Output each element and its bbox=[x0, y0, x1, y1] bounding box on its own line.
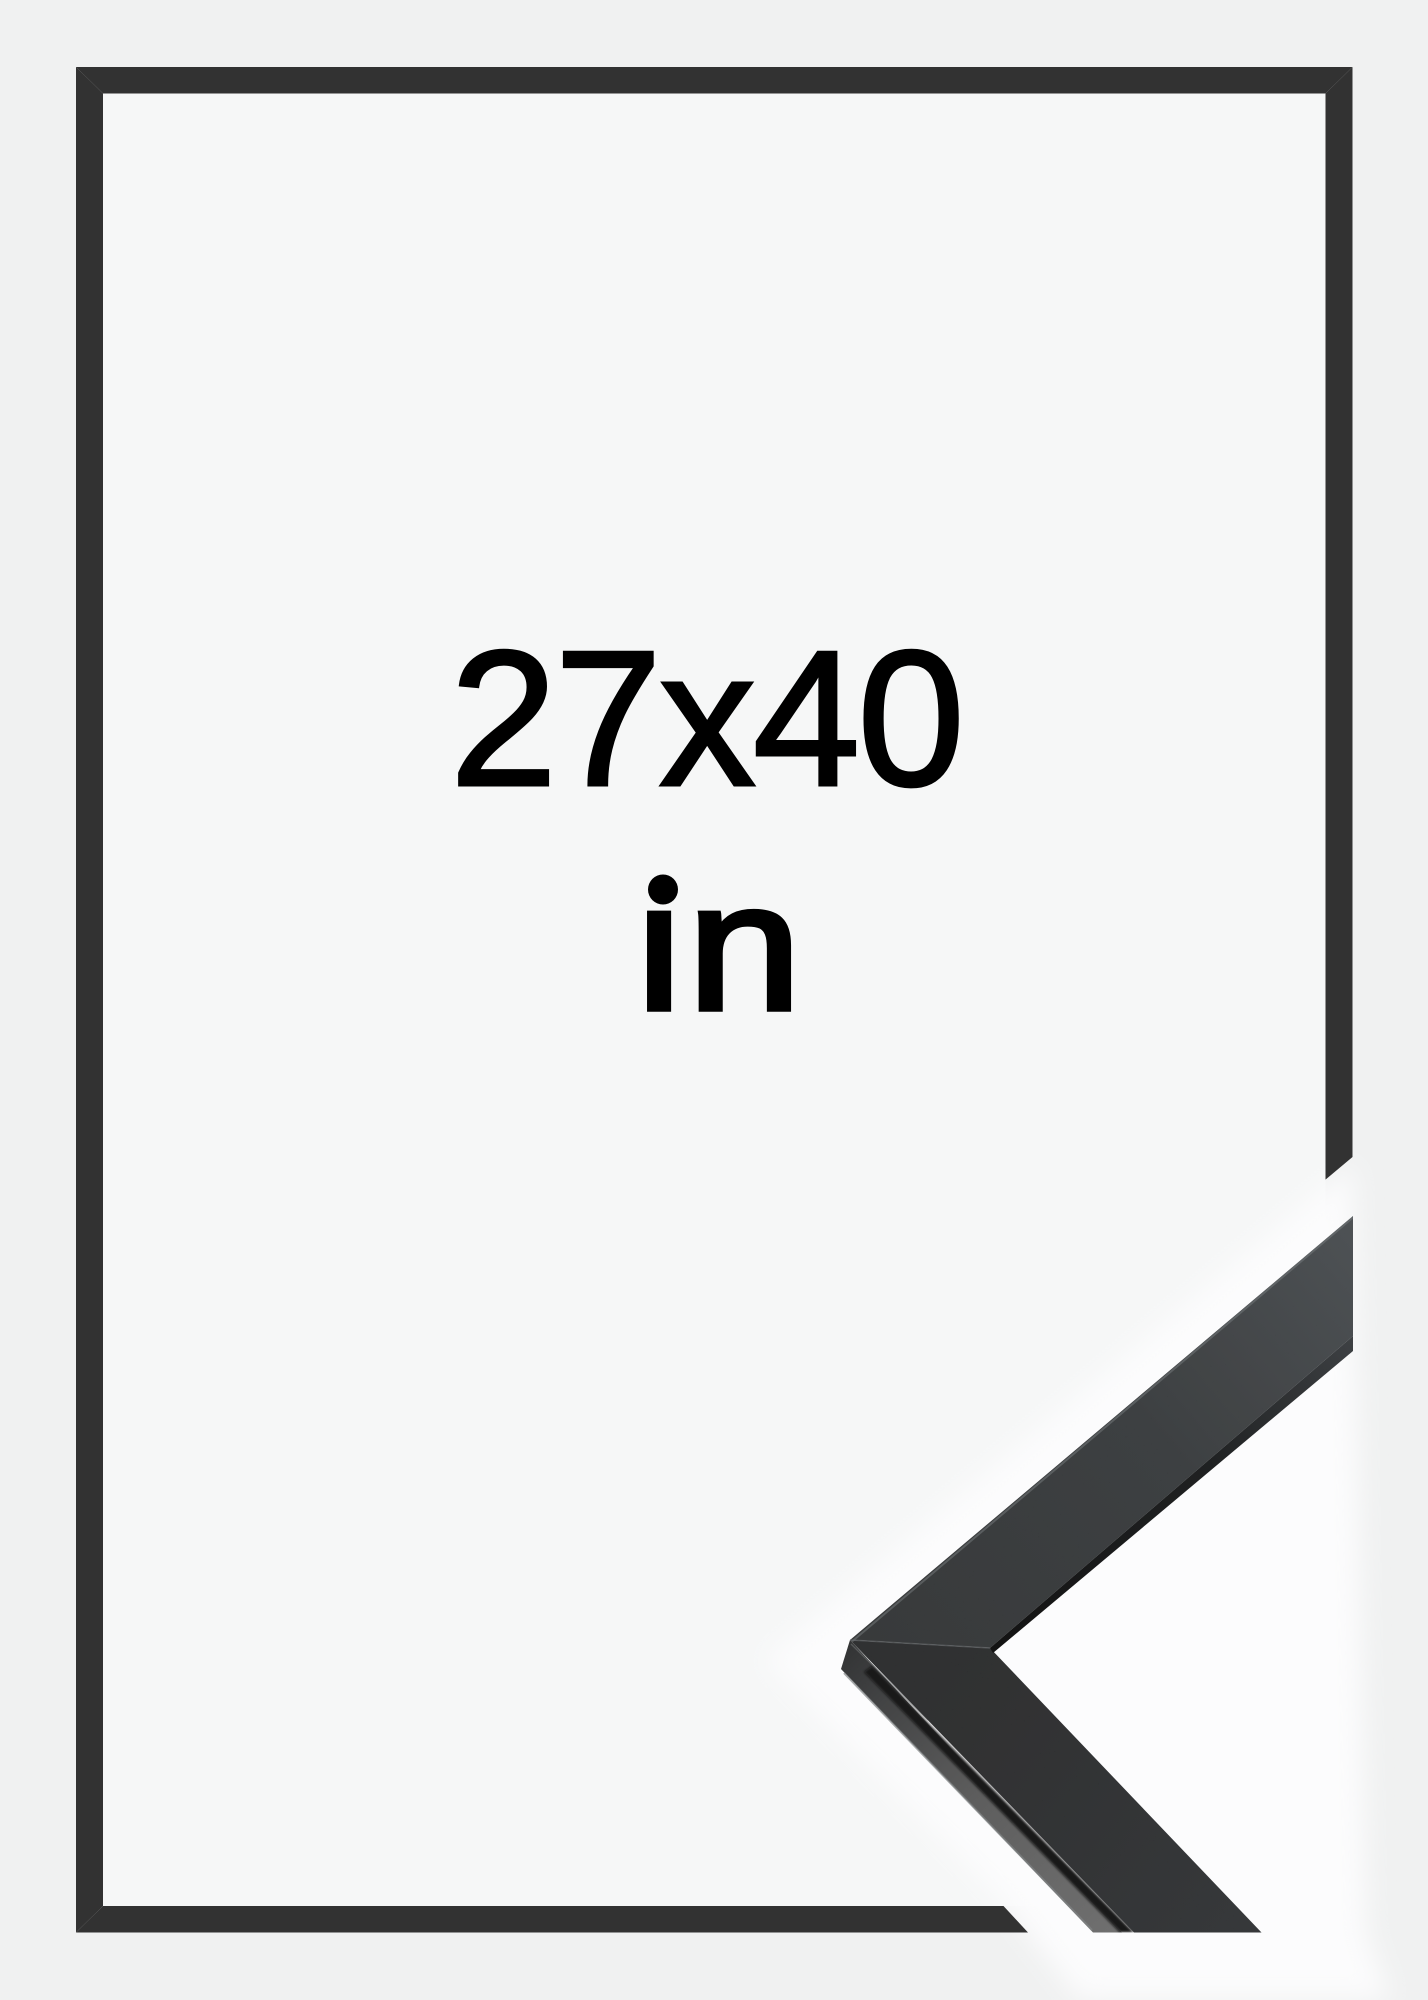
svg-text:27x40: 27x40 bbox=[450, 610, 962, 826]
svg-text:ın: ın bbox=[631, 845, 802, 1047]
